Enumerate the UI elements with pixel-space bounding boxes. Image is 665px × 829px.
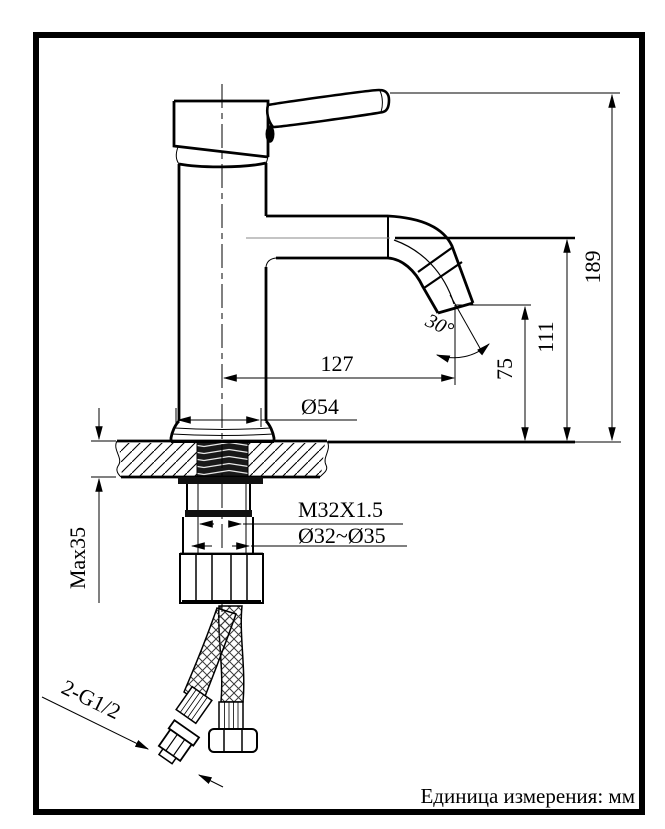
dim-max35-label: Max35 — [65, 527, 90, 589]
lock-washer — [178, 477, 263, 484]
dim-189-label: 189 — [580, 251, 605, 284]
drawing-frame — [36, 35, 642, 812]
dim-75-label: 75 — [492, 358, 517, 380]
units-note: Единица измерения: мм — [420, 784, 635, 808]
hose-ferrule-right — [219, 702, 243, 729]
drawing-page: 189 111 75 127 Ø54 30° M32X1.5 Ø32~Ø35 — [0, 0, 665, 829]
dim-127-label: 127 — [321, 351, 354, 376]
technical-drawing: 189 111 75 127 Ø54 30° M32X1.5 Ø32~Ø35 — [0, 0, 665, 829]
hose-fitting-right — [209, 729, 257, 752]
dim-d54-label: Ø54 — [301, 394, 339, 419]
mounting-nut — [180, 554, 263, 603]
dim-m32-label: M32X1.5 — [298, 497, 383, 522]
lever-joint — [266, 125, 275, 143]
dim-111-label: 111 — [533, 321, 558, 352]
dim-hole-label: Ø32~Ø35 — [298, 523, 386, 548]
